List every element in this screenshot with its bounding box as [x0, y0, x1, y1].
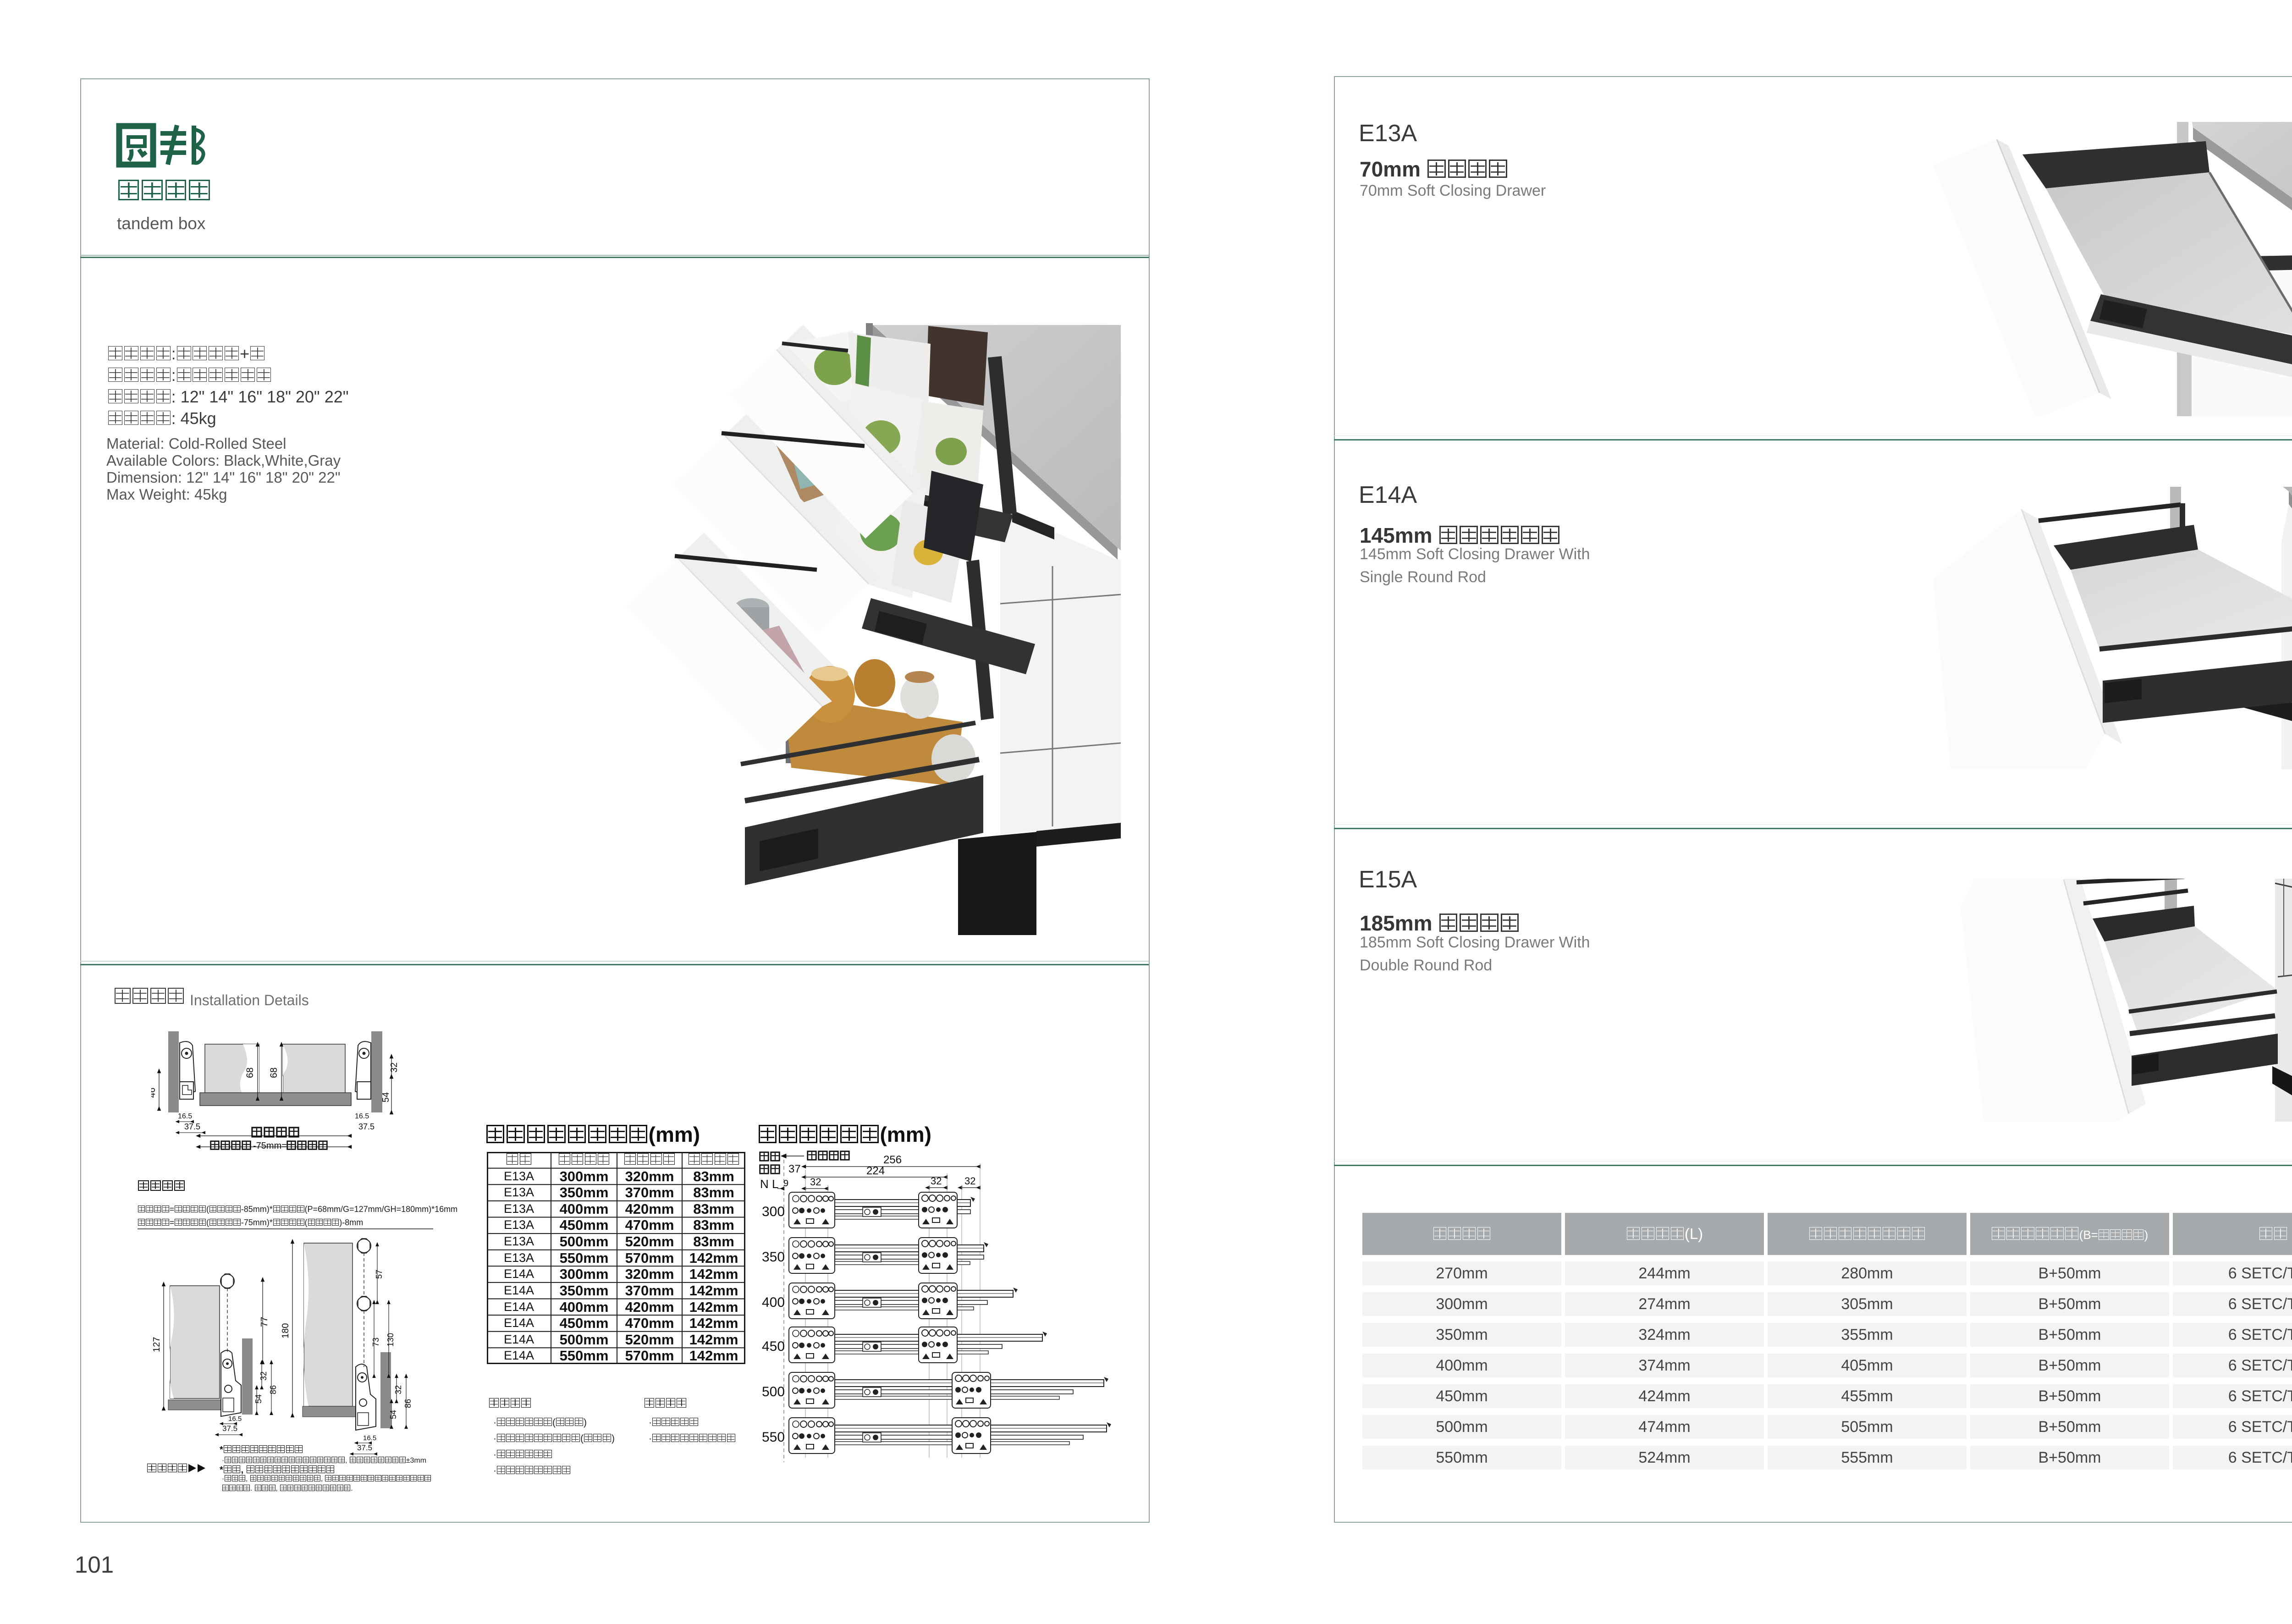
svg-text:54: 54 — [389, 1410, 398, 1419]
svg-text:57: 57 — [375, 1270, 384, 1279]
svg-text:77: 77 — [259, 1317, 270, 1327]
svg-text:68: 68 — [269, 1068, 279, 1078]
svg-text:16.5: 16.5 — [363, 1434, 376, 1442]
svg-text:54: 54 — [254, 1394, 263, 1404]
svg-text:350: 350 — [762, 1250, 785, 1265]
svg-text:32: 32 — [931, 1175, 942, 1187]
svg-text:73: 73 — [371, 1338, 380, 1347]
svg-text:68: 68 — [245, 1068, 255, 1078]
svg-text:37.5: 37.5 — [357, 1443, 372, 1452]
svg-text:32: 32 — [259, 1371, 268, 1381]
svg-text:500: 500 — [762, 1384, 785, 1399]
svg-text:32: 32 — [964, 1175, 975, 1187]
svg-text:450: 450 — [762, 1339, 785, 1354]
svg-text:32: 32 — [810, 1176, 821, 1188]
svg-text:32: 32 — [389, 1062, 399, 1073]
svg-text:86: 86 — [269, 1385, 278, 1394]
svg-text:37.5: 37.5 — [184, 1122, 200, 1131]
svg-text:16.5: 16.5 — [178, 1112, 192, 1120]
svg-text:256: 256 — [883, 1154, 902, 1166]
svg-text:180: 180 — [281, 1323, 291, 1338]
svg-text:224: 224 — [866, 1165, 885, 1177]
svg-text:127: 127 — [152, 1337, 162, 1352]
svg-text:46: 46 — [151, 1088, 157, 1098]
svg-text:54: 54 — [381, 1092, 391, 1102]
svg-text:16.5: 16.5 — [355, 1112, 369, 1120]
svg-text:32: 32 — [394, 1385, 403, 1394]
svg-text:N L: N L — [760, 1177, 778, 1191]
svg-text:37: 37 — [788, 1163, 801, 1175]
svg-text:130: 130 — [386, 1333, 395, 1347]
svg-text:-75mm=: -75mm= — [253, 1141, 287, 1151]
svg-text:86: 86 — [403, 1399, 413, 1408]
svg-text:300: 300 — [762, 1204, 785, 1219]
svg-text:37.5: 37.5 — [358, 1122, 375, 1131]
svg-text:400: 400 — [762, 1295, 785, 1310]
svg-text:37.5: 37.5 — [222, 1424, 237, 1433]
svg-text:9: 9 — [783, 1178, 788, 1189]
svg-text:16.5: 16.5 — [228, 1415, 242, 1423]
svg-text:550: 550 — [762, 1430, 785, 1445]
